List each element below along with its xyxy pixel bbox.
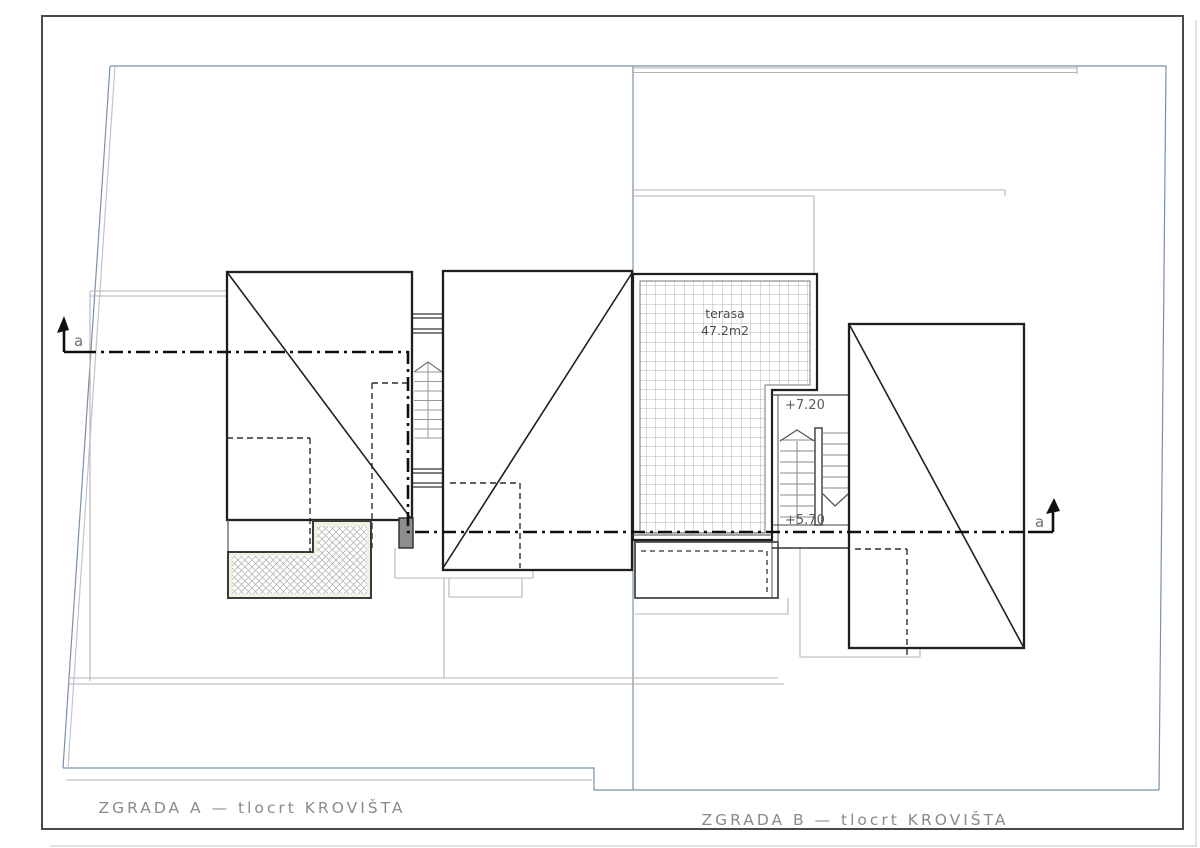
title-building-b: ZGRADA B — tlocrt KROVIŠTA (701, 810, 1008, 829)
roof-plan-drawing: terasa 47.2m2 +7.20 +5.70 a a (0, 0, 1200, 848)
roof-plan-sheet: terasa 47.2m2 +7.20 +5.70 a a (0, 0, 1200, 848)
elevation-upper-label: +7.20 (785, 398, 825, 413)
elevation-lower-label: +5.70 (785, 513, 825, 528)
title-building-a: ZGRADA A — tlocrt KROVIŠTA (98, 798, 405, 817)
terrace-area-label: 47.2m2 (701, 323, 749, 338)
chimney-block (399, 518, 413, 548)
section-right-letter: a (1035, 513, 1044, 531)
building-a-roof (227, 272, 413, 552)
building-b-roof (849, 324, 1024, 655)
section-left-letter: a (74, 332, 83, 350)
terrace-name-label: terasa (705, 306, 745, 321)
stair-b-stringer (815, 428, 822, 525)
middle-roof (443, 271, 632, 570)
